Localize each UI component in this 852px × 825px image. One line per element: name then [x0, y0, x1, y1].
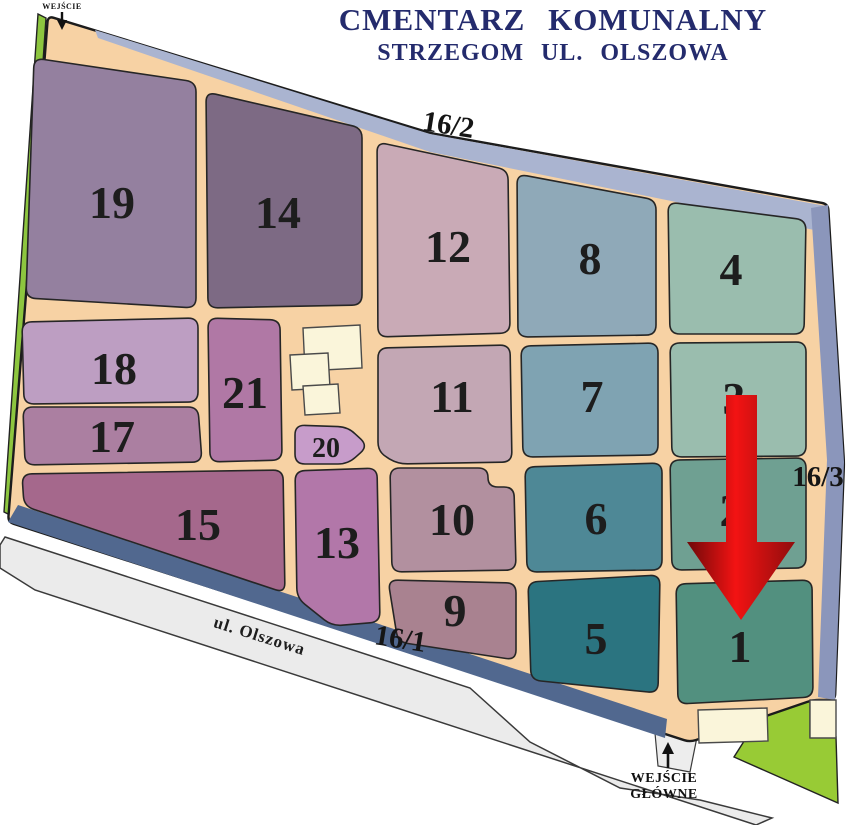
section-17-label: 17 — [89, 411, 135, 462]
cemetery-map-page: 191412841817212011731513109625116/216/11… — [0, 0, 852, 825]
section-1-label: 1 — [729, 621, 752, 672]
main-entrance-label-line1: WEJŚCIE — [631, 769, 698, 786]
section-11-label: 11 — [430, 371, 473, 422]
section-5-label: 5 — [585, 613, 608, 664]
building-3 — [303, 384, 340, 415]
section-18-label: 18 — [91, 343, 137, 394]
map-subtitle: STRZEGOM UL. OLSZOWA — [377, 40, 728, 66]
section-20-label: 20 — [312, 433, 340, 464]
map-layers: 191412841817212011731513109625116/216/11… — [0, 1, 844, 825]
parcel-label-16-1: 16/1 — [372, 619, 428, 659]
building-4 — [698, 708, 768, 743]
parcel-label-16-3: 16/3 — [792, 461, 844, 493]
section-6-label: 6 — [585, 493, 608, 544]
section-19-label: 19 — [89, 177, 135, 228]
building-5 — [810, 700, 836, 738]
section-8-label: 8 — [579, 233, 602, 284]
north-entrance-label: WEJŚCIE — [42, 1, 82, 11]
cemetery-map: 191412841817212011731513109625116/216/11… — [0, 0, 852, 825]
section-13-label: 13 — [314, 517, 360, 568]
section-10-label: 10 — [429, 494, 475, 545]
section-12-label: 12 — [425, 221, 471, 272]
section-15-label: 15 — [175, 499, 221, 550]
section-7-label: 7 — [581, 371, 604, 422]
section-4-label: 4 — [720, 244, 743, 295]
main-entrance-label-line2: GŁÓWNE — [630, 785, 698, 802]
section-14-label: 14 — [255, 187, 301, 238]
map-title: CMENTARZ KOMUNALNY — [339, 2, 767, 37]
section-9-label: 9 — [444, 585, 467, 636]
section-21-label: 21 — [222, 367, 268, 418]
